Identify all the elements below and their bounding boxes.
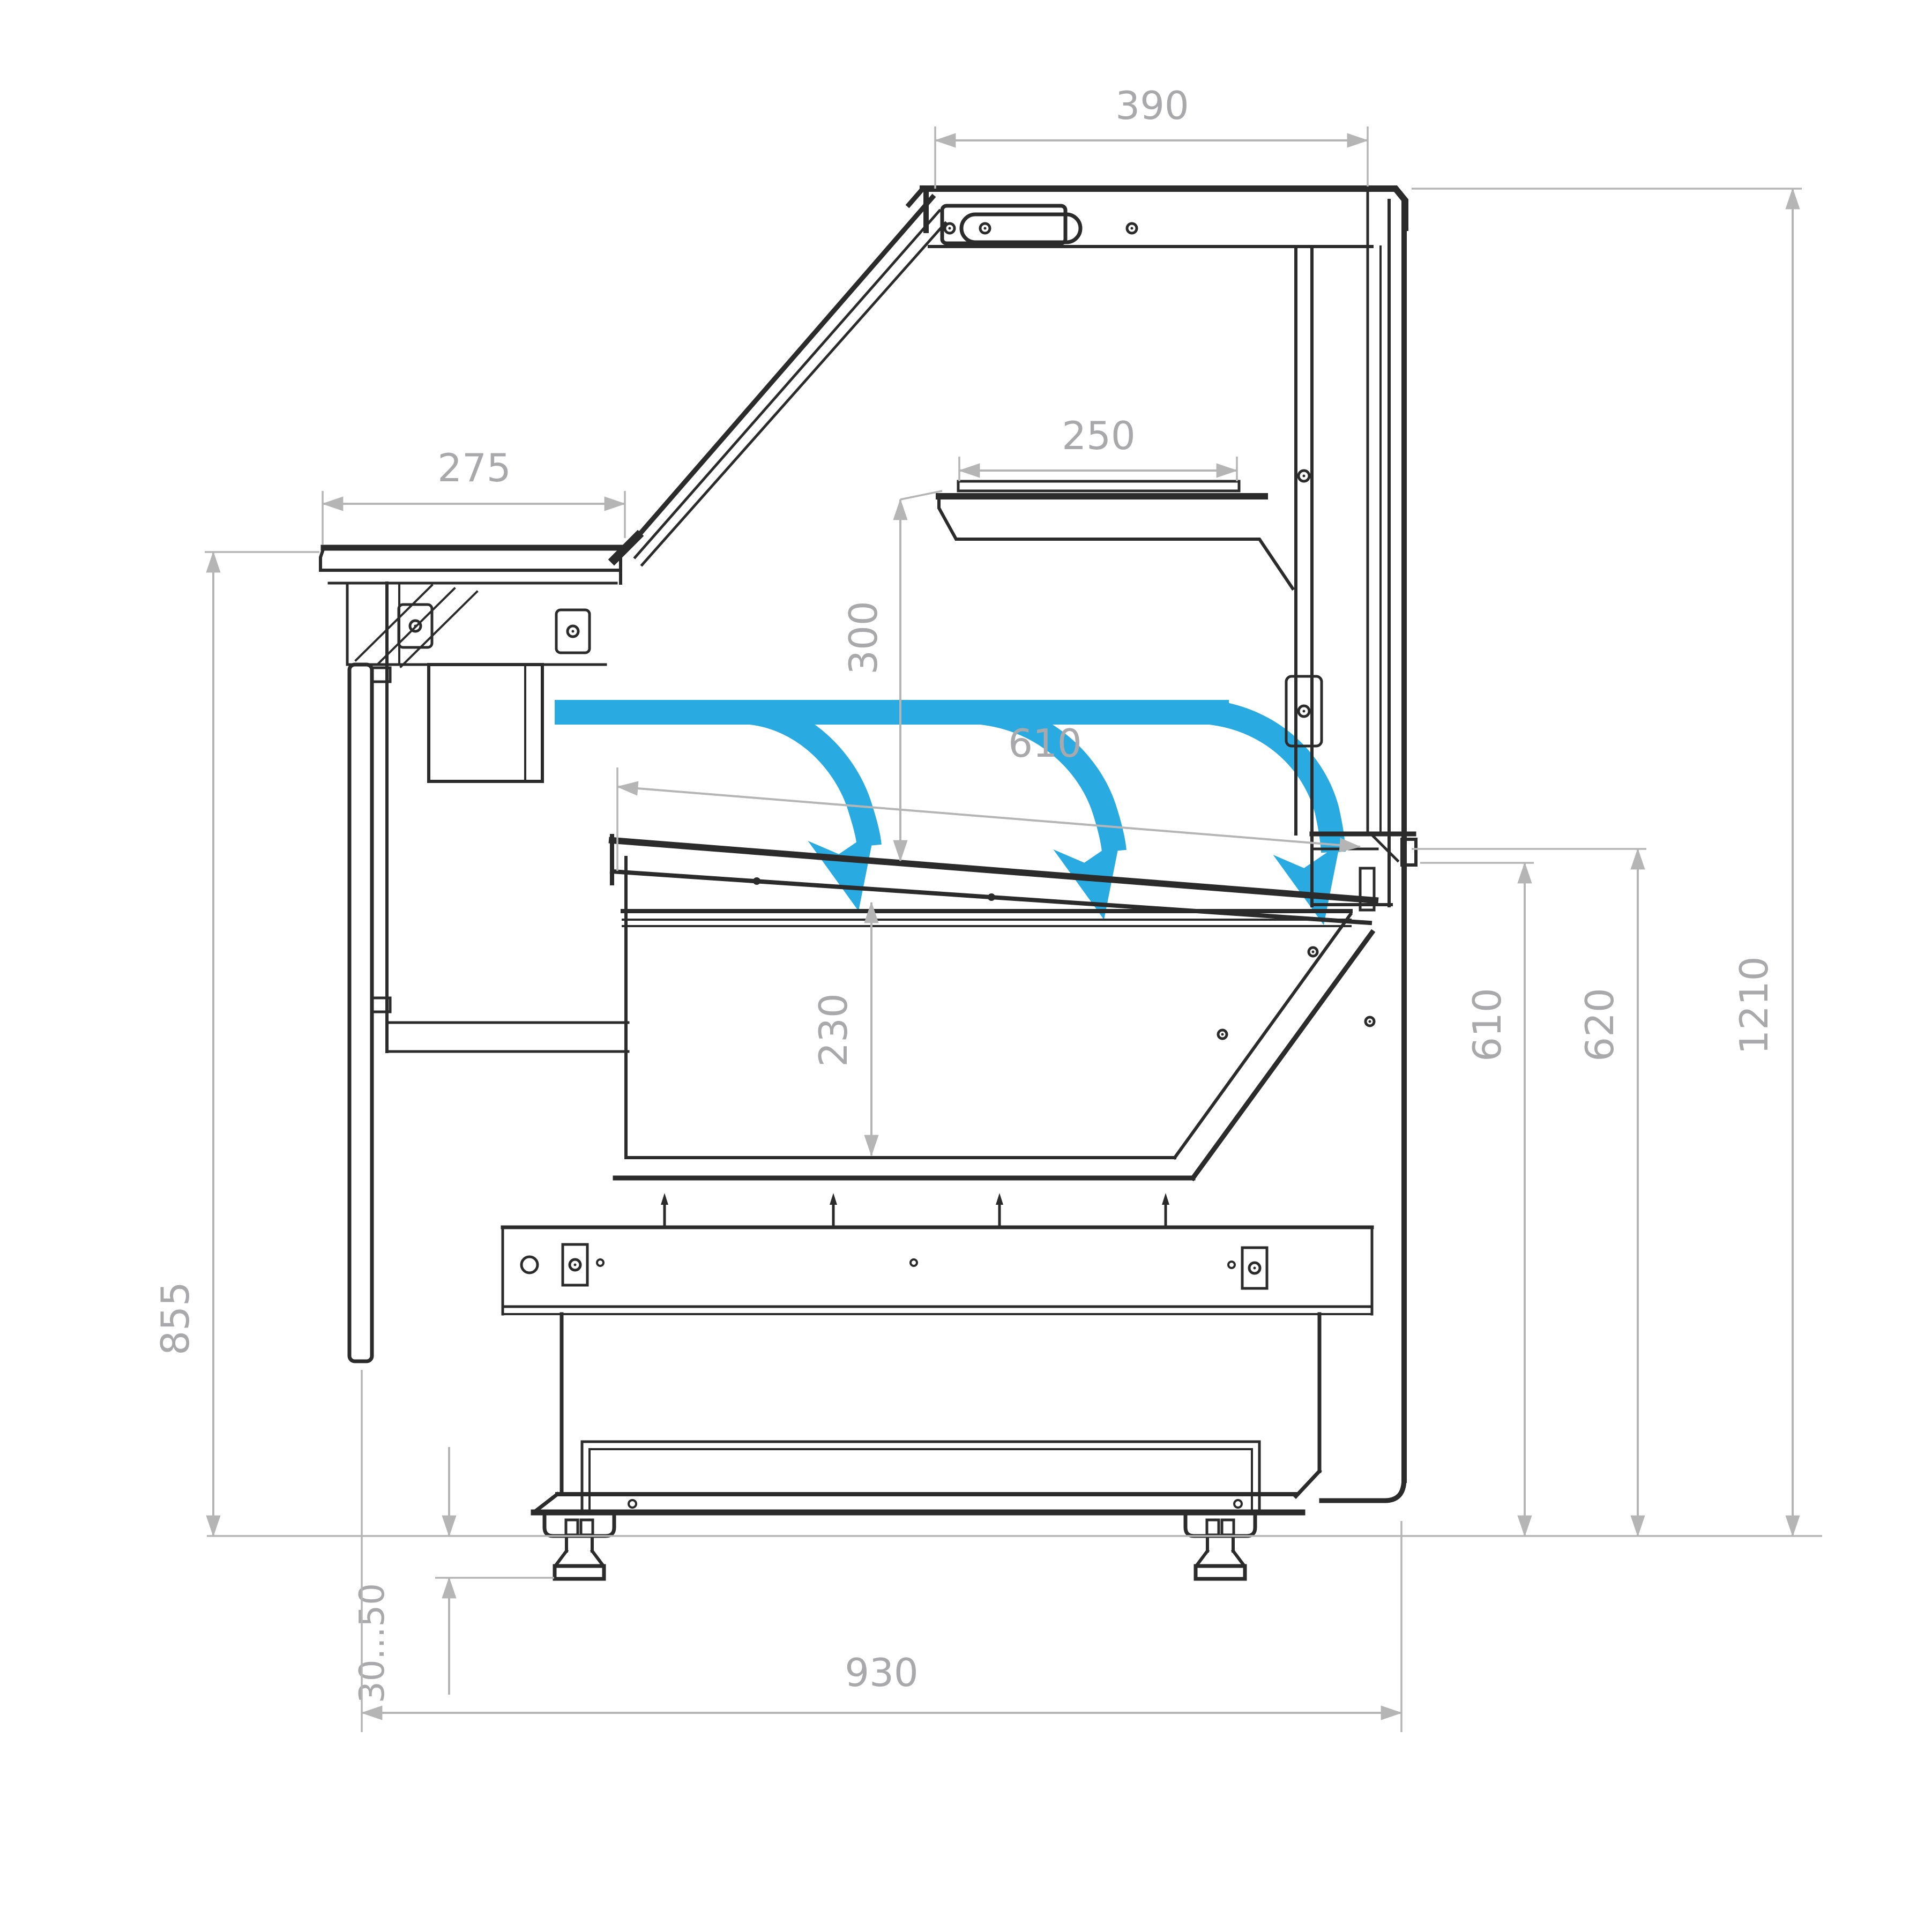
dimension-worktop-height: 855 bbox=[153, 552, 319, 1536]
shelf bbox=[939, 481, 1293, 588]
worktop bbox=[320, 548, 628, 1361]
dim-well-depth-label: 230 bbox=[811, 993, 856, 1067]
dimension-canopy-depth: 390 bbox=[935, 83, 1368, 189]
dimension-shelf-depth: 250 bbox=[959, 413, 1237, 481]
airflow-curve-3-icon bbox=[1210, 712, 1333, 852]
dim-overall-depth-label: 930 bbox=[845, 1650, 918, 1695]
dim-worktop-depth-label: 275 bbox=[437, 445, 511, 490]
dimensions: 390 275 250 300 610 bbox=[153, 83, 1822, 1732]
airflow-curve-1-icon bbox=[750, 712, 869, 846]
glass-front bbox=[614, 197, 945, 565]
cooling-well bbox=[615, 857, 1374, 1178]
dim-shelf-clearance-label: 300 bbox=[841, 601, 886, 674]
airflow-arrows bbox=[555, 700, 1358, 933]
dimension-foot-adjustment: 30...50 bbox=[353, 1447, 449, 1703]
base-frame bbox=[503, 1193, 1372, 1314]
dimension-rear-deck-height: 620 bbox=[1412, 849, 1646, 1536]
dim-shelf-depth-label: 250 bbox=[1062, 413, 1135, 458]
dimension-worktop-depth: 275 bbox=[323, 445, 625, 545]
display-tray bbox=[612, 836, 1375, 926]
dim-worktop-height-label: 855 bbox=[153, 1281, 198, 1355]
dim-overall-height-label: 1210 bbox=[1732, 956, 1777, 1054]
adjustable-foot-right bbox=[1185, 1512, 1255, 1579]
dimension-rear-deck-lower-height: 610 bbox=[1420, 863, 1534, 1536]
canopy bbox=[909, 189, 1405, 247]
cross-section-drawing: 390 275 250 300 610 bbox=[0, 0, 1932, 1924]
dim-foot-adjustment-label: 30...50 bbox=[353, 1583, 392, 1703]
dim-rear-deck-lower-height-label: 610 bbox=[1465, 988, 1510, 1061]
dim-rear-deck-height-label: 620 bbox=[1577, 988, 1622, 1061]
adjustable-foot-left bbox=[544, 1512, 614, 1579]
dimension-well-depth: 230 bbox=[811, 903, 871, 1155]
dim-display-opening-label: 610 bbox=[1008, 721, 1081, 766]
locating-pins bbox=[661, 1193, 1169, 1227]
dim-canopy-depth-label: 390 bbox=[1115, 83, 1189, 128]
dimension-overall-depth: 930 bbox=[362, 1370, 1401, 1732]
technical-drawing-canvas: 390 275 250 300 610 bbox=[0, 0, 1932, 1924]
plinth bbox=[534, 1314, 1319, 1512]
airflow-band-icon bbox=[555, 700, 1229, 725]
